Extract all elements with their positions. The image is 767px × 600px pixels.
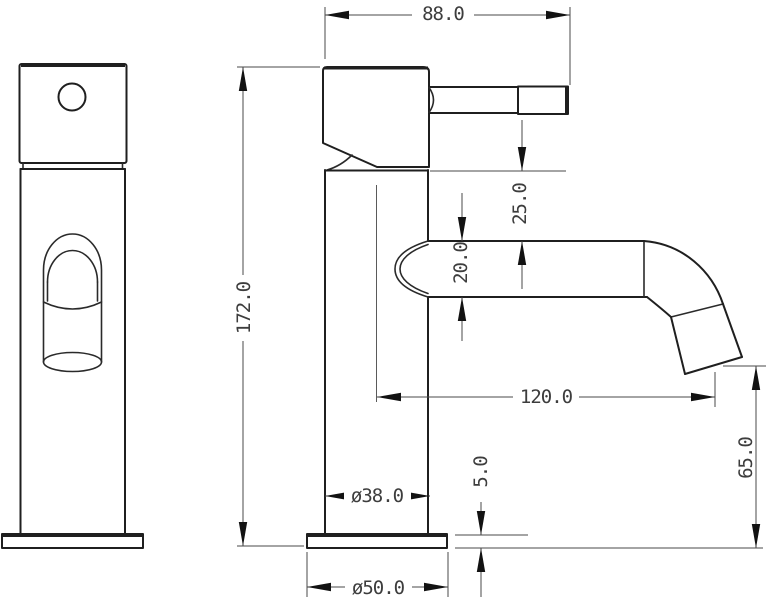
dim-label-overall-height: 172.0 <box>233 281 255 334</box>
front-head-body <box>20 64 127 163</box>
front-handle-inner-arch <box>48 251 98 282</box>
dim-label-base-thickness: 5.0 <box>470 456 492 488</box>
spout-tip-joint-line <box>671 304 723 317</box>
dim-base-thickness: 5.0 <box>455 456 763 597</box>
front-button-indicator <box>59 84 86 111</box>
spout-elbow-inner-curve <box>647 297 671 317</box>
side-view <box>307 67 742 548</box>
dim-base-diameter: ø50.0 <box>307 552 448 599</box>
dim-overall-height: 172.0 <box>232 67 320 546</box>
faucet-dimension-drawing: 88.0 172.0 25.0 20.0 <box>0 0 767 600</box>
dim-label-spout-diameter: 20.0 <box>450 242 472 284</box>
spout <box>395 241 742 374</box>
dim-label-body-diameter: ø38.0 <box>351 485 404 507</box>
spout-elbow-outer-curve <box>644 241 723 304</box>
side-pivot-arc <box>327 155 352 170</box>
dim-label-base-diameter: ø50.0 <box>352 577 405 599</box>
dim-label-body-top-to-spout: 25.0 <box>509 183 531 225</box>
dim-outlet-height: 65.0 <box>723 366 766 548</box>
dim-label-overall-width: 88.0 <box>422 3 464 25</box>
front-handle-bottom-cap <box>44 353 102 372</box>
technical-drawing-canvas: 88.0 172.0 25.0 20.0 <box>0 0 767 600</box>
side-head-outline <box>323 67 429 167</box>
front-view <box>2 64 143 548</box>
front-handle-mid-curve <box>44 302 102 309</box>
dim-label-outlet-height: 65.0 <box>735 437 757 479</box>
dimensions: 88.0 172.0 25.0 20.0 <box>232 2 766 599</box>
dim-spout-diameter: 20.0 <box>450 193 472 341</box>
spout-tip-inner-edge <box>671 317 685 374</box>
dim-body-diameter: ø38.0 <box>325 485 430 507</box>
dim-label-spout-reach: 120.0 <box>520 386 573 408</box>
spout-tip-outer-edge <box>723 304 742 357</box>
lever-knurled-grip <box>518 87 568 115</box>
front-handle-outline <box>44 234 102 362</box>
dim-overall-width: 88.0 <box>325 2 570 85</box>
